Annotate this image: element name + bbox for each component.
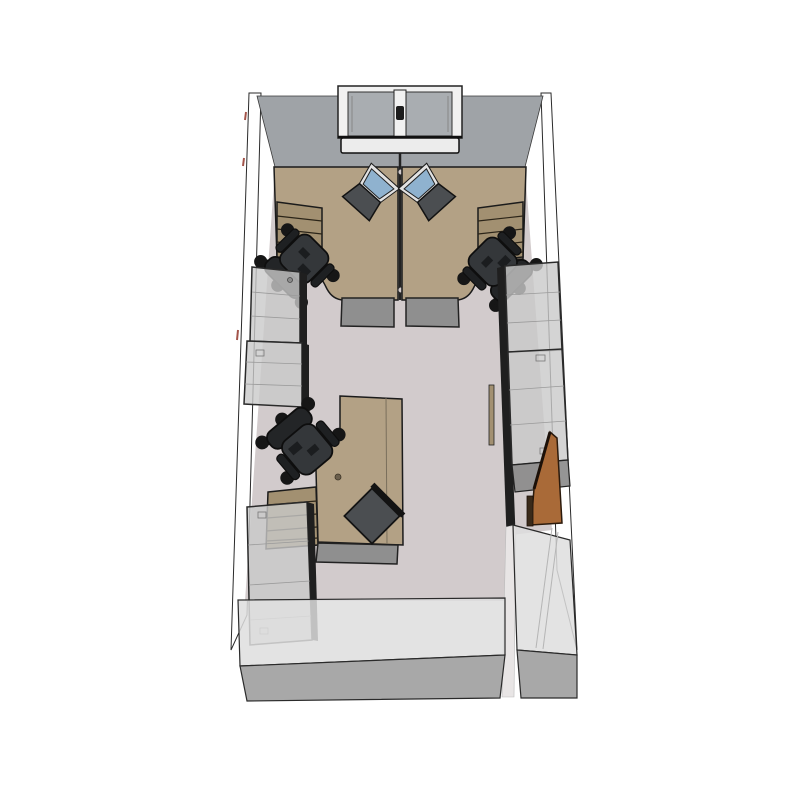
window-glass-right	[406, 92, 452, 136]
viewport-3d[interactable]	[0, 0, 800, 800]
desk-grommet	[335, 474, 341, 480]
pedestal-bottom[interactable]	[316, 543, 398, 564]
shelf-strip	[489, 385, 494, 445]
window[interactable]	[338, 86, 462, 153]
cabinet-edge	[300, 272, 307, 345]
pedestal-right[interactable]	[406, 298, 459, 327]
cabinet-left-upper[interactable]	[250, 267, 307, 345]
front-wall	[238, 598, 505, 701]
front-wall-right	[513, 525, 577, 698]
render-stage	[0, 0, 800, 800]
window-handle-icon	[396, 106, 404, 120]
pedestal-left[interactable]	[341, 298, 394, 327]
door-jamb	[527, 496, 533, 526]
window-sill	[341, 138, 459, 153]
cabinet-right-upper[interactable]	[505, 262, 562, 352]
cabinet-left-lower[interactable]	[244, 341, 309, 408]
window-glass-left	[348, 92, 394, 136]
